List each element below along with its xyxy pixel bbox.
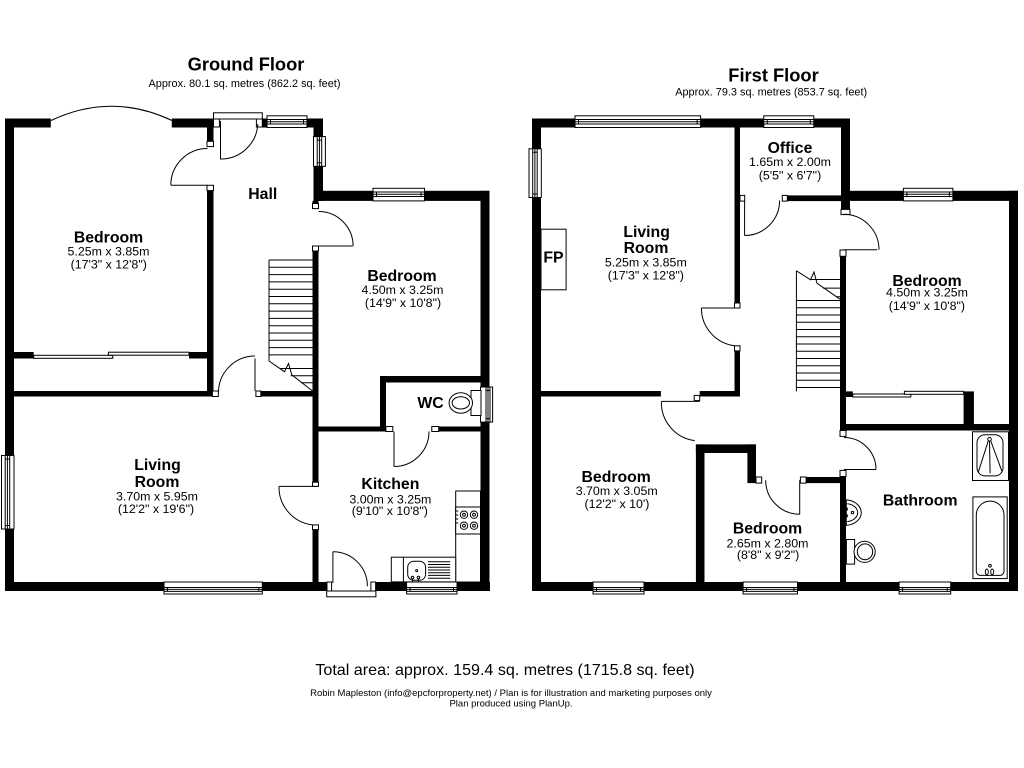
- svg-text:Approx. 79.3 sq. metres (853.7: Approx. 79.3 sq. metres (853.7 sq. feet): [675, 87, 867, 99]
- svg-text:5.25m x 3.85m: 5.25m x 3.85m: [68, 244, 150, 258]
- svg-text:Living: Living: [134, 457, 181, 474]
- svg-text:Ground Floor: Ground Floor: [188, 54, 305, 75]
- svg-text:(12'2" x 10'): (12'2" x 10'): [584, 497, 649, 511]
- svg-text:Kitchen: Kitchen: [361, 476, 419, 493]
- svg-text:(8'8" x 9'2"): (8'8" x 9'2"): [737, 548, 799, 562]
- svg-text:(12'2" x 19'6"): (12'2" x 19'6"): [118, 502, 194, 516]
- svg-text:4.50m x 3.25m: 4.50m x 3.25m: [886, 286, 968, 300]
- svg-text:Robin Mapleston (info@epcforpr: Robin Mapleston (info@epcforproperty.net…: [310, 688, 712, 699]
- svg-text:Bedroom: Bedroom: [733, 520, 802, 537]
- svg-text:(5'5" x 6'7"): (5'5" x 6'7"): [759, 169, 821, 183]
- svg-text:(14'9" x 10'8"): (14'9" x 10'8"): [889, 299, 965, 313]
- svg-text:(9'10" x 10'8"): (9'10" x 10'8"): [352, 504, 428, 518]
- svg-text:3.70m x 3.05m: 3.70m x 3.05m: [576, 484, 658, 498]
- svg-text:4.50m x 3.25m: 4.50m x 3.25m: [362, 283, 444, 297]
- svg-text:Bathroom: Bathroom: [883, 493, 958, 510]
- svg-text:Room: Room: [624, 240, 669, 257]
- svg-text:WC: WC: [417, 395, 443, 412]
- svg-text:First Floor: First Floor: [728, 64, 818, 85]
- svg-text:Total area: approx. 159.4 sq.: Total area: approx. 159.4 sq. metres (17…: [315, 661, 694, 679]
- svg-text:Living: Living: [623, 224, 670, 241]
- svg-text:1.65m x 2.00m: 1.65m x 2.00m: [749, 155, 831, 169]
- svg-text:(14'9" x 10'8"): (14'9" x 10'8"): [365, 296, 441, 310]
- svg-text:Hall: Hall: [248, 186, 277, 203]
- svg-text:FP: FP: [543, 250, 563, 267]
- svg-text:Plan produced using PlanUp.: Plan produced using PlanUp.: [449, 699, 572, 710]
- svg-text:Room: Room: [135, 474, 180, 491]
- svg-text:(17'3" x 12'8"): (17'3" x 12'8"): [608, 268, 684, 282]
- svg-text:Approx. 80.1 sq. metres (862.2: Approx. 80.1 sq. metres (862.2 sq. feet): [149, 78, 341, 90]
- svg-text:(17'3" x 12'8"): (17'3" x 12'8"): [71, 257, 147, 271]
